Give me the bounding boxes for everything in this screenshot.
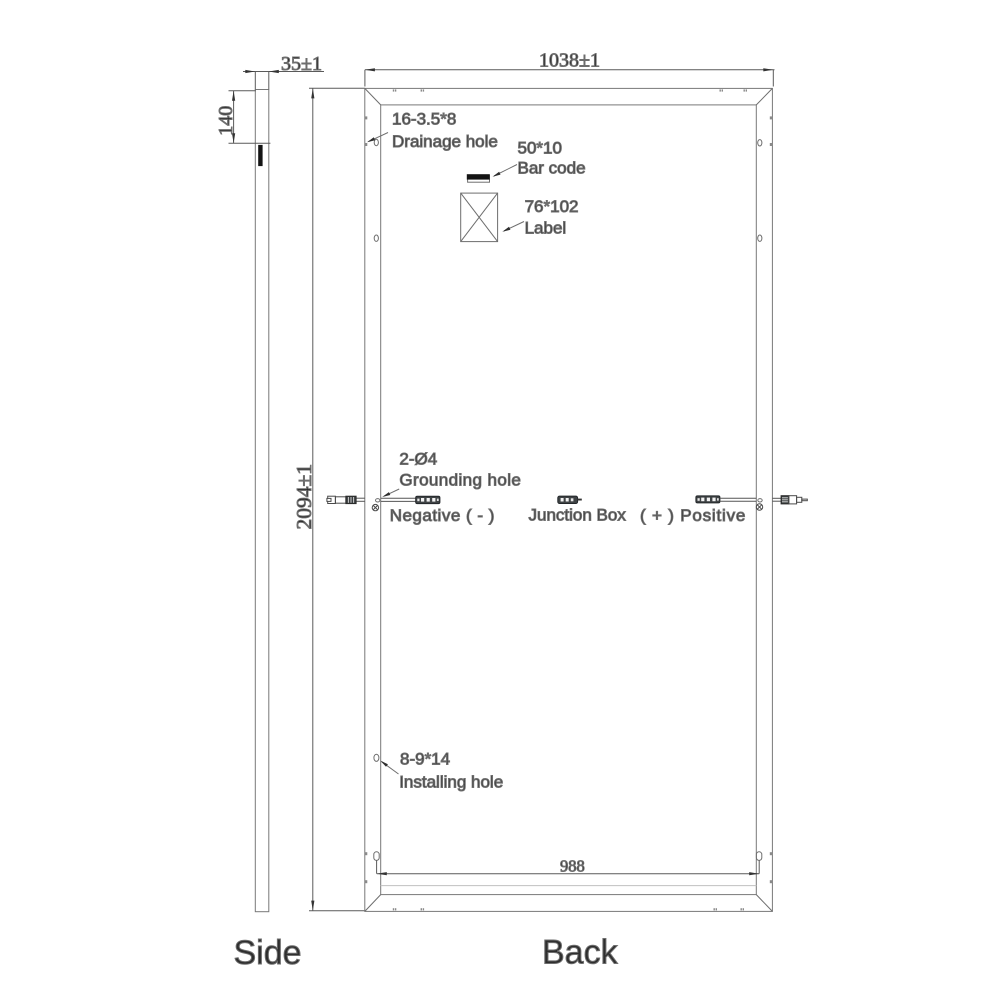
svg-text:76*102: 76*102 — [525, 197, 579, 216]
svg-text:35±1: 35±1 — [281, 53, 322, 75]
svg-text:Bar code: Bar code — [518, 159, 586, 178]
svg-text:1038±1: 1038±1 — [539, 49, 600, 71]
svg-text:Label: Label — [525, 218, 567, 237]
svg-text:Junction Box: Junction Box — [529, 506, 627, 525]
svg-text:( + ) Positive: ( + ) Positive — [640, 506, 746, 525]
svg-text:2-Ø4: 2-Ø4 — [399, 450, 437, 469]
svg-text:50*10: 50*10 — [518, 139, 562, 158]
svg-text:Grounding hole: Grounding hole — [399, 471, 521, 490]
svg-text:Back: Back — [542, 934, 619, 972]
svg-text:Installing hole: Installing hole — [399, 772, 503, 791]
svg-text:8-9*14: 8-9*14 — [400, 749, 450, 768]
svg-text:988: 988 — [560, 856, 585, 875]
svg-text:2094±1: 2094±1 — [292, 464, 316, 530]
svg-text:Drainage hole: Drainage hole — [392, 132, 498, 151]
svg-text:Side: Side — [234, 934, 302, 972]
svg-text:140: 140 — [215, 106, 237, 136]
svg-text:16-3.5*8: 16-3.5*8 — [392, 109, 456, 128]
svg-text:Negative ( - ): Negative ( - ) — [390, 506, 495, 525]
